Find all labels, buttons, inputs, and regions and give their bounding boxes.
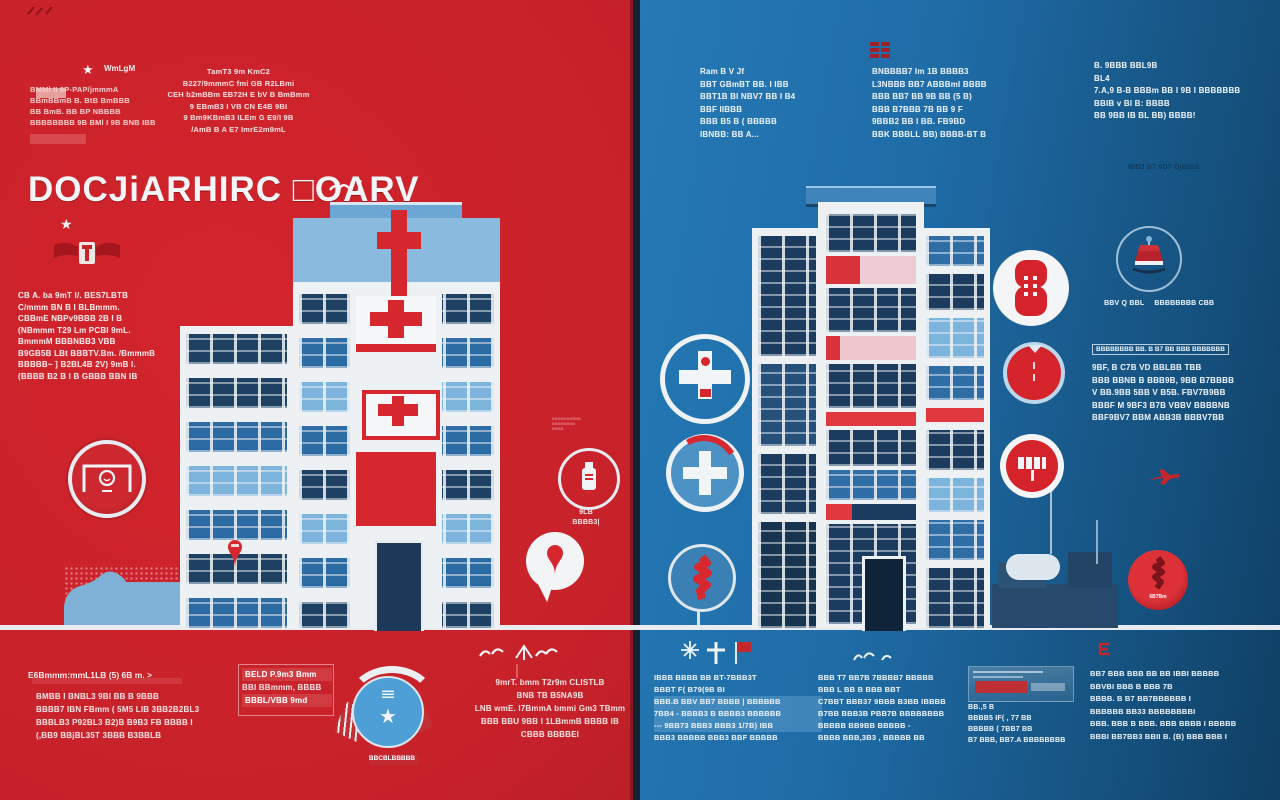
text-line: BBBB5 IF( , 77 BB xyxy=(968,713,1088,724)
text-line: BBF IIBBB xyxy=(700,104,855,117)
text-line: BBBB7 IBN FBmm ( 5M5 LIB 3BB2B2BL3 xyxy=(36,703,251,716)
text-line: B227/9mmmC fmi GB R2LBmi xyxy=(166,78,311,90)
bottom-block-b: BELD P.9m3 BmmBBI BBmmm, BBBBBBBL/VBB 9m… xyxy=(242,668,332,707)
text-line: --- 9BB73 BBB3 BBB3 1/7B) IBB xyxy=(654,720,822,732)
map-pin-icon xyxy=(224,538,246,570)
plus-badge-icon xyxy=(666,434,744,512)
text-line: B9GB5B LBt BBBTV.Bm. /BmmmB xyxy=(18,348,173,360)
text-line: TamT3 9m KmC2 xyxy=(166,66,311,78)
badge-caption: BBCBLBBBBB xyxy=(355,755,429,762)
red-entrance-panel xyxy=(356,452,436,526)
text-line: (,BB9 BBjBL35T 3BBB B3BBLB xyxy=(36,729,251,742)
text-line: BBBB xyxy=(552,426,612,431)
right-top-block-a: Ram B V JfBBT GBmBT BB. I IBBBBT1B BI NB… xyxy=(700,66,855,141)
text-line: BBB T7 BB7B 7BBBB7 BBBBB xyxy=(818,672,974,684)
hospital-sign-lower xyxy=(362,390,440,440)
window-row xyxy=(758,364,816,446)
text-line: CB A. ba 9mT I/. BES7LBTB xyxy=(18,290,173,302)
text-line: BMBB I BNBL3 9BI BB B 9BBB xyxy=(36,690,251,703)
storage-tank xyxy=(1006,554,1060,580)
red-accent xyxy=(826,504,852,520)
star-icon: ★ xyxy=(60,216,73,233)
industrial-building xyxy=(1068,552,1112,588)
text-line: BBB. BBB B BBB. BBB BBBB I BBBBB xyxy=(1090,718,1278,731)
window-row xyxy=(926,366,984,400)
text-line: BBBBBBBB 9B BMl I 9B BNB IBB xyxy=(30,117,180,128)
bottom-right-block-b: BBB T7 BB7B 7BBBB7 BBBBBBBB L BB B BBB B… xyxy=(818,672,974,744)
text-line: CBBB BBBBEI xyxy=(452,728,648,741)
text-line: BBBBBB BB33 BBBBBBBBI xyxy=(1090,706,1278,719)
window-row xyxy=(826,430,916,466)
pink-accent xyxy=(840,336,916,360)
bottle-caption: 9LBBBBB3| xyxy=(552,508,620,528)
window-row xyxy=(758,236,816,356)
text-line: BNBBBB7 Im 1B BBBB3 xyxy=(872,66,1042,79)
antenna-mast xyxy=(1050,490,1052,554)
text-line: BBB BBU 9BB I 1LBmmB BBBB IB xyxy=(452,715,648,728)
text-line: CEH b2mBBm EB72H E bV B BmBmm xyxy=(166,89,311,101)
window-row xyxy=(926,236,984,266)
window-row xyxy=(758,454,816,514)
plane-icon xyxy=(1146,466,1182,488)
text-line: BB7 BBB BBB BB BB IBBI BBBBB xyxy=(1090,668,1278,681)
text-line: 9BF, B C7B VD BBLBB TBB xyxy=(1092,362,1268,375)
text-line: BBBB. B B7 BB7BBBBBB I xyxy=(1090,693,1278,706)
text-block-top-left: BMMl II 9P-PAP/jmmmABBmBBmB B. BtB BmBBB… xyxy=(30,84,180,128)
lamp-caption-b: BBBBBBBB CBB xyxy=(1152,300,1216,307)
window-row xyxy=(926,568,984,628)
gavel-badge-icon xyxy=(1000,434,1064,498)
text-line: BNB TB B5NA9B xyxy=(452,689,648,702)
text-line: 9mrT. bmm T2r9m CLISTLB xyxy=(452,676,648,689)
text-line: IBNBB: BB A... xyxy=(700,129,855,142)
badge-glyph xyxy=(382,690,394,698)
bird-icon xyxy=(328,180,352,194)
text-line: BBF9BV7 BBM ABB3B BBBV7BB xyxy=(1092,412,1268,425)
text-line: BBBB BBB,3B3 , BBBBB BB xyxy=(818,732,974,744)
text-block-top-center: TamT3 9m KmC2B227/9mmmC fmi GB R2LBmiCEH… xyxy=(166,66,311,135)
text-line: V BB.9BB 5BB V B5B. FBV7B9BB xyxy=(1092,387,1268,400)
red-badge-label: 6B7Bm xyxy=(1128,594,1188,600)
badge-circle: ★ xyxy=(352,676,424,748)
text-line: LNB wmE. I7BmmA bmmi Gm3 TBmm xyxy=(452,702,648,715)
text-line: BMMl II 9P-PAP/jmmmA xyxy=(30,84,180,95)
text-line: Ram B V Jf xyxy=(700,66,855,79)
small-caption: IBB3 B7 6D7 OjBIBB xyxy=(1128,162,1268,174)
text-line: 7.A,9 B-B BBBm BB I 9B I BBBBBBB xyxy=(1094,85,1269,98)
text-line: BBBBB BB9BB BBBBB - xyxy=(818,720,974,732)
text-line: 7BB4 - BBBB3 B BBBB3 BBBBBB xyxy=(654,708,822,720)
left-building-west-wing xyxy=(180,326,293,628)
spine-badge-icon xyxy=(668,544,736,612)
window-row xyxy=(186,378,287,408)
window-row xyxy=(826,214,916,252)
text-line: BBBI BB7BB3 BBII B. (B) BBB BBB I xyxy=(1090,731,1278,744)
text-line: BmmmM BBBNBB3 VBB xyxy=(18,336,173,348)
letter-e-icon xyxy=(1098,642,1112,656)
red-cross-vertical xyxy=(391,210,407,302)
text-line: BBB BBNB B BBB9B, 9BB B7BBBB xyxy=(1092,375,1268,388)
photo-thumbnail xyxy=(968,666,1074,702)
star-seal-badge: ★ BBCBLBBBBB xyxy=(343,666,429,772)
window-row xyxy=(926,520,984,560)
text-line: BBB B7BBB 7B BB 9 F xyxy=(872,104,1042,117)
star-cross-flag-icons xyxy=(680,638,764,666)
text-line: BBB3 BBBBB BBB3 BBF BBBBB xyxy=(654,732,822,744)
antenna-mast xyxy=(1096,520,1098,564)
text-line: L3NBBB BB7 ABBBmI BBBB xyxy=(872,79,1042,92)
medicine-bottle-badge-icon xyxy=(558,448,620,510)
text-line: C7BBT BBB37 9BBB B3BB IBBBB xyxy=(818,696,974,708)
bottom-right-block-a: IBBB BBBB BB BT-7BBB3TBBBT F( B79(9B BIB… xyxy=(654,672,822,744)
window-row xyxy=(186,334,287,364)
window-row xyxy=(926,430,984,470)
window-row xyxy=(826,470,916,500)
text-line: BB.,5 B xyxy=(968,702,1088,713)
low-building xyxy=(64,566,182,628)
text-line: 9 EBmB3 I VB CN E4B 9BI xyxy=(166,101,311,113)
bird-icons xyxy=(478,642,562,664)
heart-badge-icon xyxy=(1003,342,1065,404)
text-line: BBBBB ( 7BB7 BB xyxy=(968,724,1088,735)
window-row xyxy=(826,364,916,408)
text-line: 9BBB2 BB I BB. FB9BD xyxy=(872,116,1042,129)
industrial-building xyxy=(992,584,1118,628)
lamp-caption: BBV Q BBL BBBBBBBB CBB xyxy=(1104,298,1244,310)
keypad-badge-icon xyxy=(993,250,1069,326)
text-line: BBB L BB B BBB BBT xyxy=(818,684,974,696)
bottom-block-a: BMBB I BNBL3 9BI BB B 9BBBBBBB7 IBN FBmm… xyxy=(36,690,251,742)
text-line: BBBT F( B79(9B BI xyxy=(654,684,822,696)
text-line: IBBB BBBB BB BT-7BBB3T xyxy=(654,672,822,684)
panel-heading: BBBBBBBB BB. B B7 BB BBB BBBBBBB xyxy=(1092,344,1229,355)
medical-cross-badge-icon xyxy=(660,334,750,424)
infographic-poster: ★ WmLgM BMMl II 9P-PAP/jmmmABBmBBmB B. B… xyxy=(0,0,1280,800)
text-line: BBBLB3 P92BL3 B2)B B9B3 FB BBBB I xyxy=(36,716,251,729)
text-line: BBBBB~ ] B2BL4B 2V) 9mB I. xyxy=(18,359,173,371)
bottom-block-a-heading: E6Bmmm:mmL1LB (5) 6B m. > xyxy=(28,670,152,680)
right-building-door xyxy=(862,556,906,631)
corner-marks xyxy=(26,4,62,18)
hospital-sign-upper xyxy=(356,296,436,352)
lamp-badge-icon xyxy=(1116,226,1182,292)
right-top-block-c: B. 9BBB BBL9BBL47.A,9 B-B BBBm BB I 9B I… xyxy=(1094,60,1269,123)
speech-bubble-icon xyxy=(526,532,584,590)
text-line: BBK BBBLL BB) BBBB-BT B xyxy=(872,129,1042,142)
red-accent xyxy=(826,256,860,284)
window-row xyxy=(758,522,816,628)
fine-print-lines: BBBBBBBBBBBBBBBBBBBBBB xyxy=(552,416,612,431)
window-row xyxy=(926,318,984,358)
lamp-caption-a: BBV Q BBL xyxy=(1104,300,1144,307)
window-row xyxy=(926,274,984,310)
text-line: BBmBBmB B. BtB BmBBB xyxy=(30,95,180,106)
text-line: BELD P.9m3 Bmm xyxy=(242,668,332,681)
red-cross-horizontal xyxy=(377,232,421,249)
window-row xyxy=(926,478,984,512)
text-line: BBVBI BBB B BBB 7B xyxy=(1090,681,1278,694)
text-block-intro: CB A. ba 9mT I/. BES7LBTBC/mmm BN B I BL… xyxy=(18,290,173,382)
text-line: BB BmB. BB BP NBBBB xyxy=(30,106,180,117)
window-row xyxy=(186,422,287,452)
text-line: (NBmmm T29 Lm PCBI 9mL. xyxy=(18,325,173,337)
pink-accent xyxy=(860,256,916,284)
window-row xyxy=(186,510,287,540)
text-line: BBB BB7 BB 9B BB (5 B) xyxy=(872,91,1042,104)
red-seal-badge-icon: 6B7Bm xyxy=(1128,550,1188,610)
star-icon: ★ xyxy=(82,62,94,78)
text-line: B. 9BBB BBL9B xyxy=(1094,60,1269,73)
text-line: BBI BBmmm, BBBB xyxy=(242,681,332,694)
text-line: BL4 xyxy=(1094,73,1269,86)
red-accent xyxy=(826,336,840,360)
bottom-right-block-d: BB7 BBB BBB BB BB IBBI BBBBBBBVBI BBB B … xyxy=(1090,668,1278,743)
text-line: B7 BBB, BB7.A BBBBBBBB xyxy=(968,735,1088,746)
text-line: (BBBB B2 B I B GBBB BBN IB xyxy=(18,371,173,383)
highlight-swatch xyxy=(30,134,86,144)
text-line: CBBmE NBPv9BBB 2B I B xyxy=(18,313,173,325)
top-left-tag: WmLgM xyxy=(104,64,135,73)
flag-grid-icon xyxy=(870,42,890,58)
navy-accent xyxy=(852,504,916,520)
text-line: BBB.B BBV BB7 BBBB | BBBBBB xyxy=(654,696,822,708)
window-row xyxy=(186,466,287,496)
text-line: BBBF M 9BF3 B7B VBBV BBBBNB xyxy=(1092,400,1268,413)
text-line: BBBB3| xyxy=(552,518,620,528)
text-line: BBB B5 B ( BBBBB xyxy=(700,116,855,129)
bottom-right-block-c: BB.,5 BBBBB5 IF( , 77 BBBBBBB ( 7BB7 BBB… xyxy=(968,702,1088,746)
entrance-door xyxy=(374,540,424,631)
bird-icons xyxy=(852,648,902,666)
right-mid-panel: 9BF, B C7B VD BBLBB TBBBBB BBNB B BBB9B,… xyxy=(1092,362,1268,425)
text-line: BBT GBmBT BB. I IBB xyxy=(700,79,855,92)
winged-emblem-icon xyxy=(52,238,122,270)
right-top-block-b: BNBBBB7 Im 1B BBBB3L3NBBB BB7 ABBBmI BBB… xyxy=(872,66,1042,141)
star-icon: ★ xyxy=(354,704,422,729)
text-line: BB 9BB IB BL BB) BBBB! xyxy=(1094,110,1269,123)
text-line: BBIB v BI B: BBBB xyxy=(1094,98,1269,111)
red-band xyxy=(926,408,984,422)
window-row xyxy=(826,288,916,332)
text-line: 9 Bm9KBmB3 ILEm G E9/I 9B xyxy=(166,112,311,124)
text-line: C/mmm BN B I BLBmmm. xyxy=(18,302,173,314)
bottom-block-c: 9mrT. bmm T2r9m CLISTLBBNB TB B5NA9BLNB … xyxy=(452,676,648,741)
text-line: /AmB B A E7 ImrE2m9mL xyxy=(166,124,311,136)
window-row xyxy=(186,598,287,628)
text-line: BBT1B BI NBV7 BB I B4 xyxy=(700,91,855,104)
monitor-badge-icon xyxy=(68,440,146,518)
text-line: 9LB xyxy=(552,508,620,518)
red-cross-icon xyxy=(370,312,422,326)
red-cross-icon xyxy=(378,404,418,416)
red-band xyxy=(826,412,916,426)
text-line: BBBL/VBB 9md xyxy=(242,694,332,707)
text-line: B7BB BBB3B PBB7B BBBBBBBB xyxy=(818,708,974,720)
